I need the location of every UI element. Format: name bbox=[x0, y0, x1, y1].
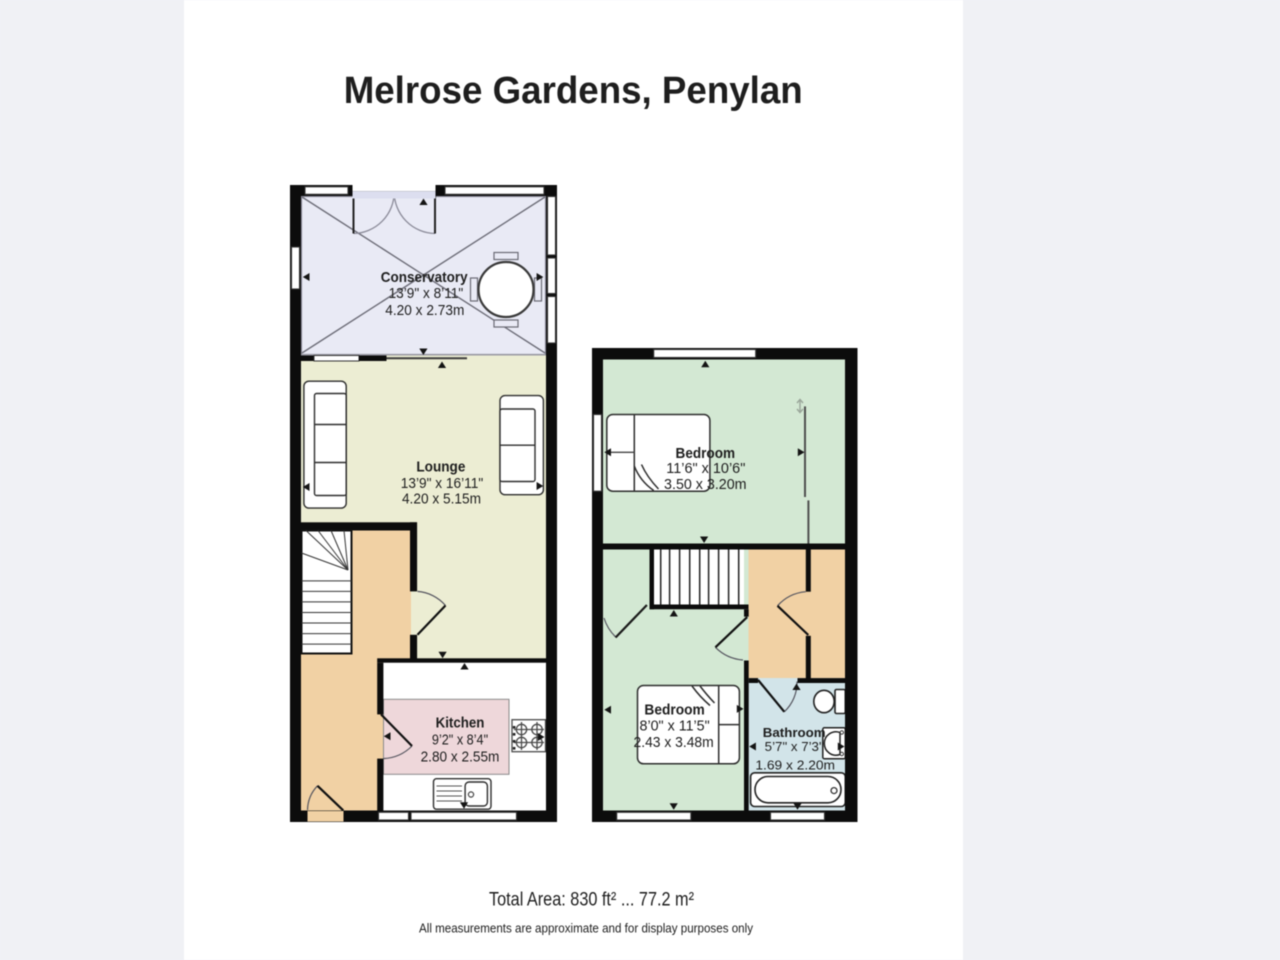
svg-text:Total Area: 830 ft² ... 77.2 m: Total Area: 830 ft² ... 77.2 m² bbox=[489, 890, 694, 911]
svg-text:Bedroom: Bedroom bbox=[676, 445, 736, 462]
svg-text:All measurements are approxima: All measurements are approximate and for… bbox=[419, 921, 753, 936]
svg-text:3.50 x 3.20m: 3.50 x 3.20m bbox=[664, 477, 747, 493]
svg-text:13’9" x 8’11": 13’9" x 8’11" bbox=[389, 286, 464, 302]
svg-text:5’7" x 7’3": 5’7" x 7’3" bbox=[765, 739, 824, 754]
svg-text:8’0" x 11’5": 8’0" x 11’5" bbox=[640, 719, 710, 735]
svg-text:2.80 x 2.55m: 2.80 x 2.55m bbox=[421, 749, 500, 765]
svg-text:Melrose Gardens, Penylan: Melrose Gardens, Penylan bbox=[344, 70, 803, 112]
svg-text:2.43 x 3.48m: 2.43 x 3.48m bbox=[634, 735, 714, 751]
svg-text:4.20 x 5.15m: 4.20 x 5.15m bbox=[402, 492, 481, 508]
svg-text:Lounge: Lounge bbox=[416, 458, 465, 475]
svg-text:11’6" x 10’6": 11’6" x 10’6" bbox=[666, 461, 745, 477]
svg-text:Bedroom: Bedroom bbox=[644, 701, 704, 718]
svg-text:9’2" x 8’4": 9’2" x 8’4" bbox=[432, 732, 488, 748]
svg-text:Conservatory: Conservatory bbox=[381, 269, 468, 286]
svg-text:Bathroom: Bathroom bbox=[763, 725, 826, 740]
svg-text:13’9" x 16’11": 13’9" x 16’11" bbox=[401, 476, 483, 492]
svg-text:4.20 x 2.73m: 4.20 x 2.73m bbox=[385, 303, 464, 319]
svg-text:1.69 x 2.20m: 1.69 x 2.20m bbox=[755, 758, 835, 773]
svg-text:Kitchen: Kitchen bbox=[436, 715, 485, 732]
